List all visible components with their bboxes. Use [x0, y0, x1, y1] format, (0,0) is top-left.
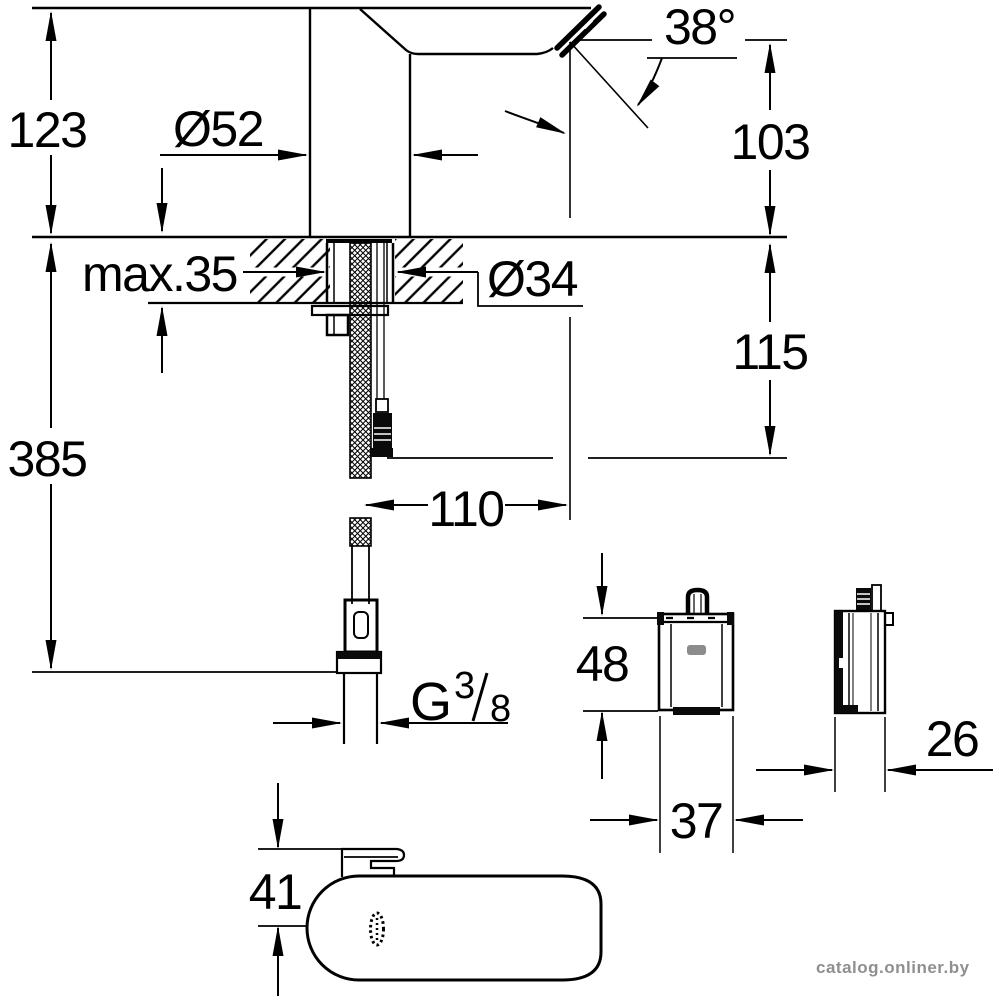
dimension-123: 123 — [8, 13, 87, 233]
dimension-diameter-52: Ø52 — [160, 101, 478, 157]
dimension-110: 110 — [366, 481, 566, 537]
outlet-angle-line — [570, 42, 648, 128]
label-box-width-37: 37 — [670, 793, 723, 849]
label-height-123: 123 — [8, 102, 87, 158]
fraction-slash — [473, 673, 487, 721]
label-diameter-34: Ø34 — [487, 251, 578, 307]
label-reach-110: 110 — [428, 481, 503, 537]
side-flange — [885, 613, 893, 625]
label-max-deck-35: max.35 — [82, 246, 237, 302]
label-total-height-385: 385 — [8, 431, 87, 487]
side-tab — [872, 585, 881, 611]
watermark: catalog.onliner.by — [816, 958, 970, 978]
aerator-outlet — [557, 7, 604, 55]
control-box-front-view — [657, 590, 734, 715]
label-spout-height-103: 103 — [731, 114, 810, 170]
sensor-cable-plug — [370, 243, 393, 457]
label-base-height-41: 41 — [249, 864, 302, 920]
label-thread-numerator: 3 — [454, 665, 474, 707]
technical-drawing-page: 123 385 Ø52 max.35 Ø34 38° 103 — [0, 0, 1000, 1000]
dimension-g38-thread: G 3 8 — [273, 665, 510, 732]
spout-bottom-view — [307, 849, 601, 980]
control-box-side-view — [835, 585, 893, 713]
braided-hose-upper — [350, 243, 371, 478]
label-diameter-52: Ø52 — [173, 101, 263, 157]
dimension-26: 26 — [756, 711, 993, 792]
braided-hose-lower — [350, 518, 371, 546]
label-angle-38: 38° — [664, 0, 735, 55]
hose-end-fitting — [337, 600, 381, 744]
faucet-dimension-drawing: 123 385 Ø52 max.35 Ø34 38° 103 — [0, 0, 1000, 1000]
base-outline — [307, 876, 601, 980]
label-box-height-48: 48 — [576, 636, 629, 692]
dimension-41: 41 — [249, 783, 341, 996]
label-thread-letter: G — [410, 672, 452, 732]
dimension-103: 103 — [731, 45, 810, 234]
box-top-nipple — [688, 590, 707, 614]
label-box-depth-26: 26 — [926, 711, 979, 767]
dimension-385: 385 — [8, 244, 336, 672]
label-thread-denominator: 8 — [490, 688, 510, 730]
mounting-nut — [327, 315, 348, 335]
grohe-logo-badge — [687, 645, 706, 655]
dimension-38deg: 38° — [577, 0, 787, 105]
sensor-direction-arrow — [505, 111, 564, 133]
label-outlet-drop-115: 115 — [732, 324, 807, 380]
spout-underside-line — [360, 9, 553, 54]
mounting-assembly — [312, 241, 393, 744]
dimension-37: 37 — [590, 716, 803, 853]
dimension-48: 48 — [576, 553, 658, 779]
mounting-clip — [342, 849, 404, 877]
